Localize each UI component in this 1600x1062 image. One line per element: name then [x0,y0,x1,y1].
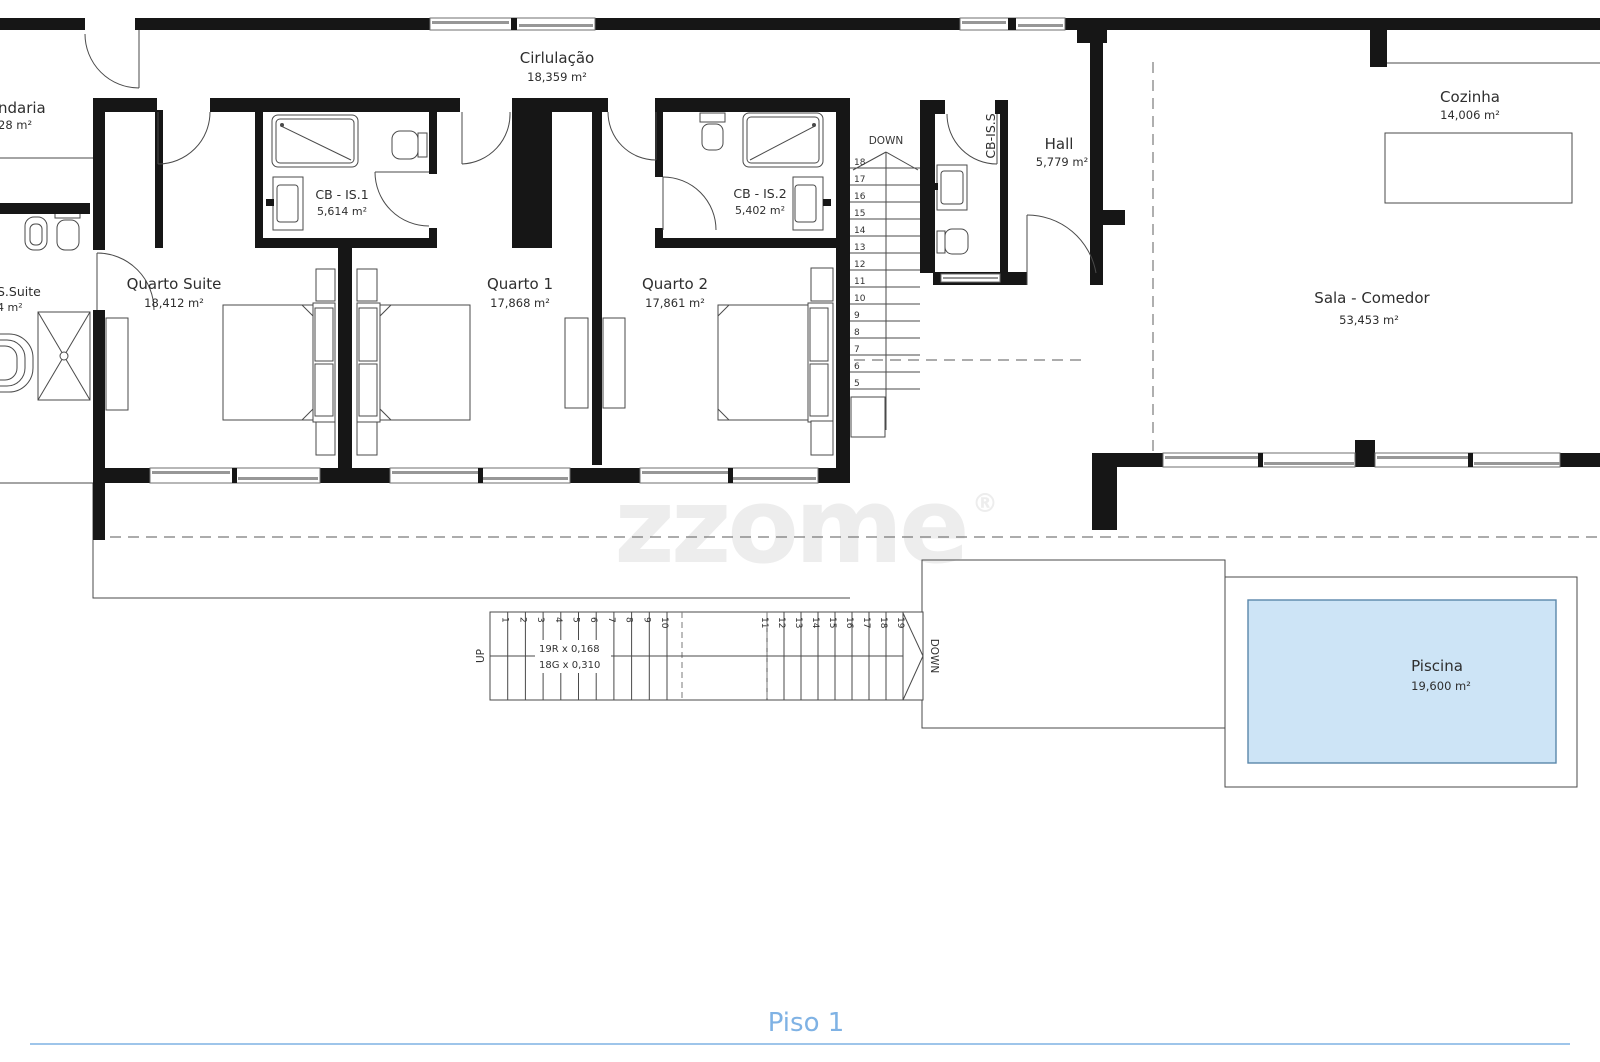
stair-step-number: 4 [553,617,563,623]
bathtub-icon [743,113,823,167]
room-area-piscina: 19,600 m² [1411,679,1471,693]
room-label-sala: Sala - Comedor [1314,289,1430,307]
room-area-lavandaria-partial: 28 m² [0,118,32,132]
stair-step-number: 10 [854,294,866,304]
room-label-cb-is2: CB - IS.2 [733,186,786,201]
window-icon [430,18,595,30]
pool-area: Piscina 19,600 m² [1225,577,1577,787]
window-icon [1163,453,1355,467]
nightstand-icon [316,269,335,301]
floor-title: Piso 1 [768,1008,845,1038]
nightstand-icon [357,269,377,301]
room-area-cozinha: 14,006 m² [1440,108,1500,122]
stair-step-number: 6 [854,362,860,372]
room-area-quarto-suite: 18,412 m² [144,296,204,310]
stair-step-number: 7 [854,345,860,355]
stair-step-number: 13 [854,243,865,253]
pool-water [1248,600,1556,763]
window-icon [640,468,818,483]
stair-step-number: 15 [854,209,865,219]
stair-step-number: 8 [854,328,860,338]
room-label-cozinha: Cozinha [1440,88,1500,106]
stair-step-number: 18 [878,617,888,629]
stair-step-number: 9 [641,617,651,623]
stair-step-number: 12 [854,260,865,270]
stairs-down-label: DOWN [869,135,904,147]
room-label-quarto2: Quarto 2 [642,275,708,293]
room-area-cb-is2: 5,402 m² [735,204,785,217]
stair-step-number: 9 [854,311,860,321]
toilet-icon [700,113,725,150]
stair-step-number: 18 [854,158,866,168]
room-label-quarto1: Quarto 1 [487,275,553,293]
stair-step-number: 16 [844,617,854,629]
toilet-icon [937,229,968,254]
stairs-up-label: UP [475,649,487,663]
nightstand-icon [811,268,833,301]
stair-step-number: 17 [854,175,865,185]
kitchen-island-icon [1385,133,1572,203]
stair-step-number: 5 [854,379,860,389]
room-area-cb-is1: 5,614 m² [317,205,367,218]
stair-step-number: 13 [793,617,803,628]
stair-step-number: 10 [659,617,669,629]
bathtub-icon [272,115,358,167]
room-area-cb-is-suite-partial: 4 m² [0,301,23,314]
nightstand-icon [316,422,335,455]
stair-step-number: 12 [776,617,786,628]
room-label-cb-is-suite-partial: S.Suite [0,284,41,299]
stair-step-number: 3 [535,617,545,623]
stair-step-number: 6 [588,617,598,623]
shower-icon [38,312,90,400]
room-label-lavandaria-partial: ndaria [0,99,46,117]
stair-step-number: 15 [827,617,837,628]
stair-step-number: 1 [500,617,510,623]
window-icon [941,274,1000,282]
stair-step-number: 11 [854,277,865,287]
bidet-icon [25,217,47,250]
wardrobe-icon [106,318,128,410]
stair-step-number: 14 [854,226,866,236]
room-label-quarto-suite: Quarto Suite [127,275,222,293]
stair-step-number: 8 [624,617,634,623]
stair-step-number: 16 [854,192,866,202]
wardrobe-icon [565,318,588,408]
stair-step-number: 17 [861,617,871,628]
floor-plan: zzome ® Piscina 19,600 m² [0,0,1600,1062]
toilet-icon [392,131,427,159]
room-label-cb-iss: CB-IS.S [983,113,998,158]
room-area-hall: 5,779 m² [1036,155,1088,169]
stair-step-number: 2 [517,617,527,623]
room-label-cb-is1: CB - IS.1 [315,187,368,202]
stair-step-number: 14 [810,617,820,629]
stair-step-number: 19 [895,617,905,629]
stair-riser-spec: 19R x 0,168 [539,644,600,655]
room-area-cirlulacao: 18,359 m² [527,70,587,84]
room-area-quarto1: 17,868 m² [490,296,550,310]
room-label-hall: Hall [1045,135,1074,153]
nightstand-icon [357,422,377,455]
window-icon [150,468,320,483]
nightstand-icon [811,421,833,455]
window-icon [1375,453,1560,467]
stair-step-number: 7 [606,617,616,623]
window-icon [960,18,1065,30]
stair-going-spec: 18G x 0,310 [539,660,600,671]
stairs-down-label: DOWN [928,639,940,674]
room-area-sala: 53,453 m² [1339,313,1399,327]
room-area-quarto2: 17,861 m² [645,296,705,310]
room-label-cirlulacao: Cirlulação [520,49,594,67]
window-icon [390,468,570,483]
watermark-registered-icon: ® [972,489,998,519]
stair-step-number: 5 [571,617,581,623]
wardrobe-icon [603,318,625,408]
toilet-icon [55,210,80,250]
room-label-piscina: Piscina [1411,657,1463,675]
